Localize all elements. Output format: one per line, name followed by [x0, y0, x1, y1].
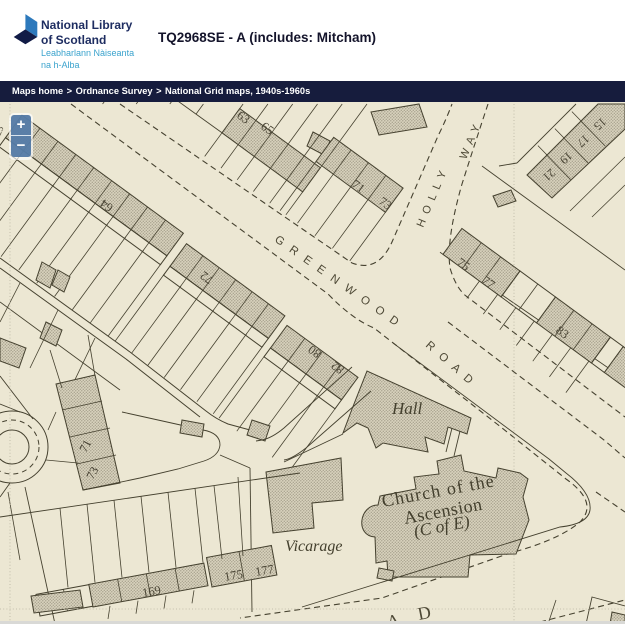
svg-text:Vicarage: Vicarage: [285, 538, 342, 555]
svg-text:Hall: Hall: [391, 399, 423, 418]
